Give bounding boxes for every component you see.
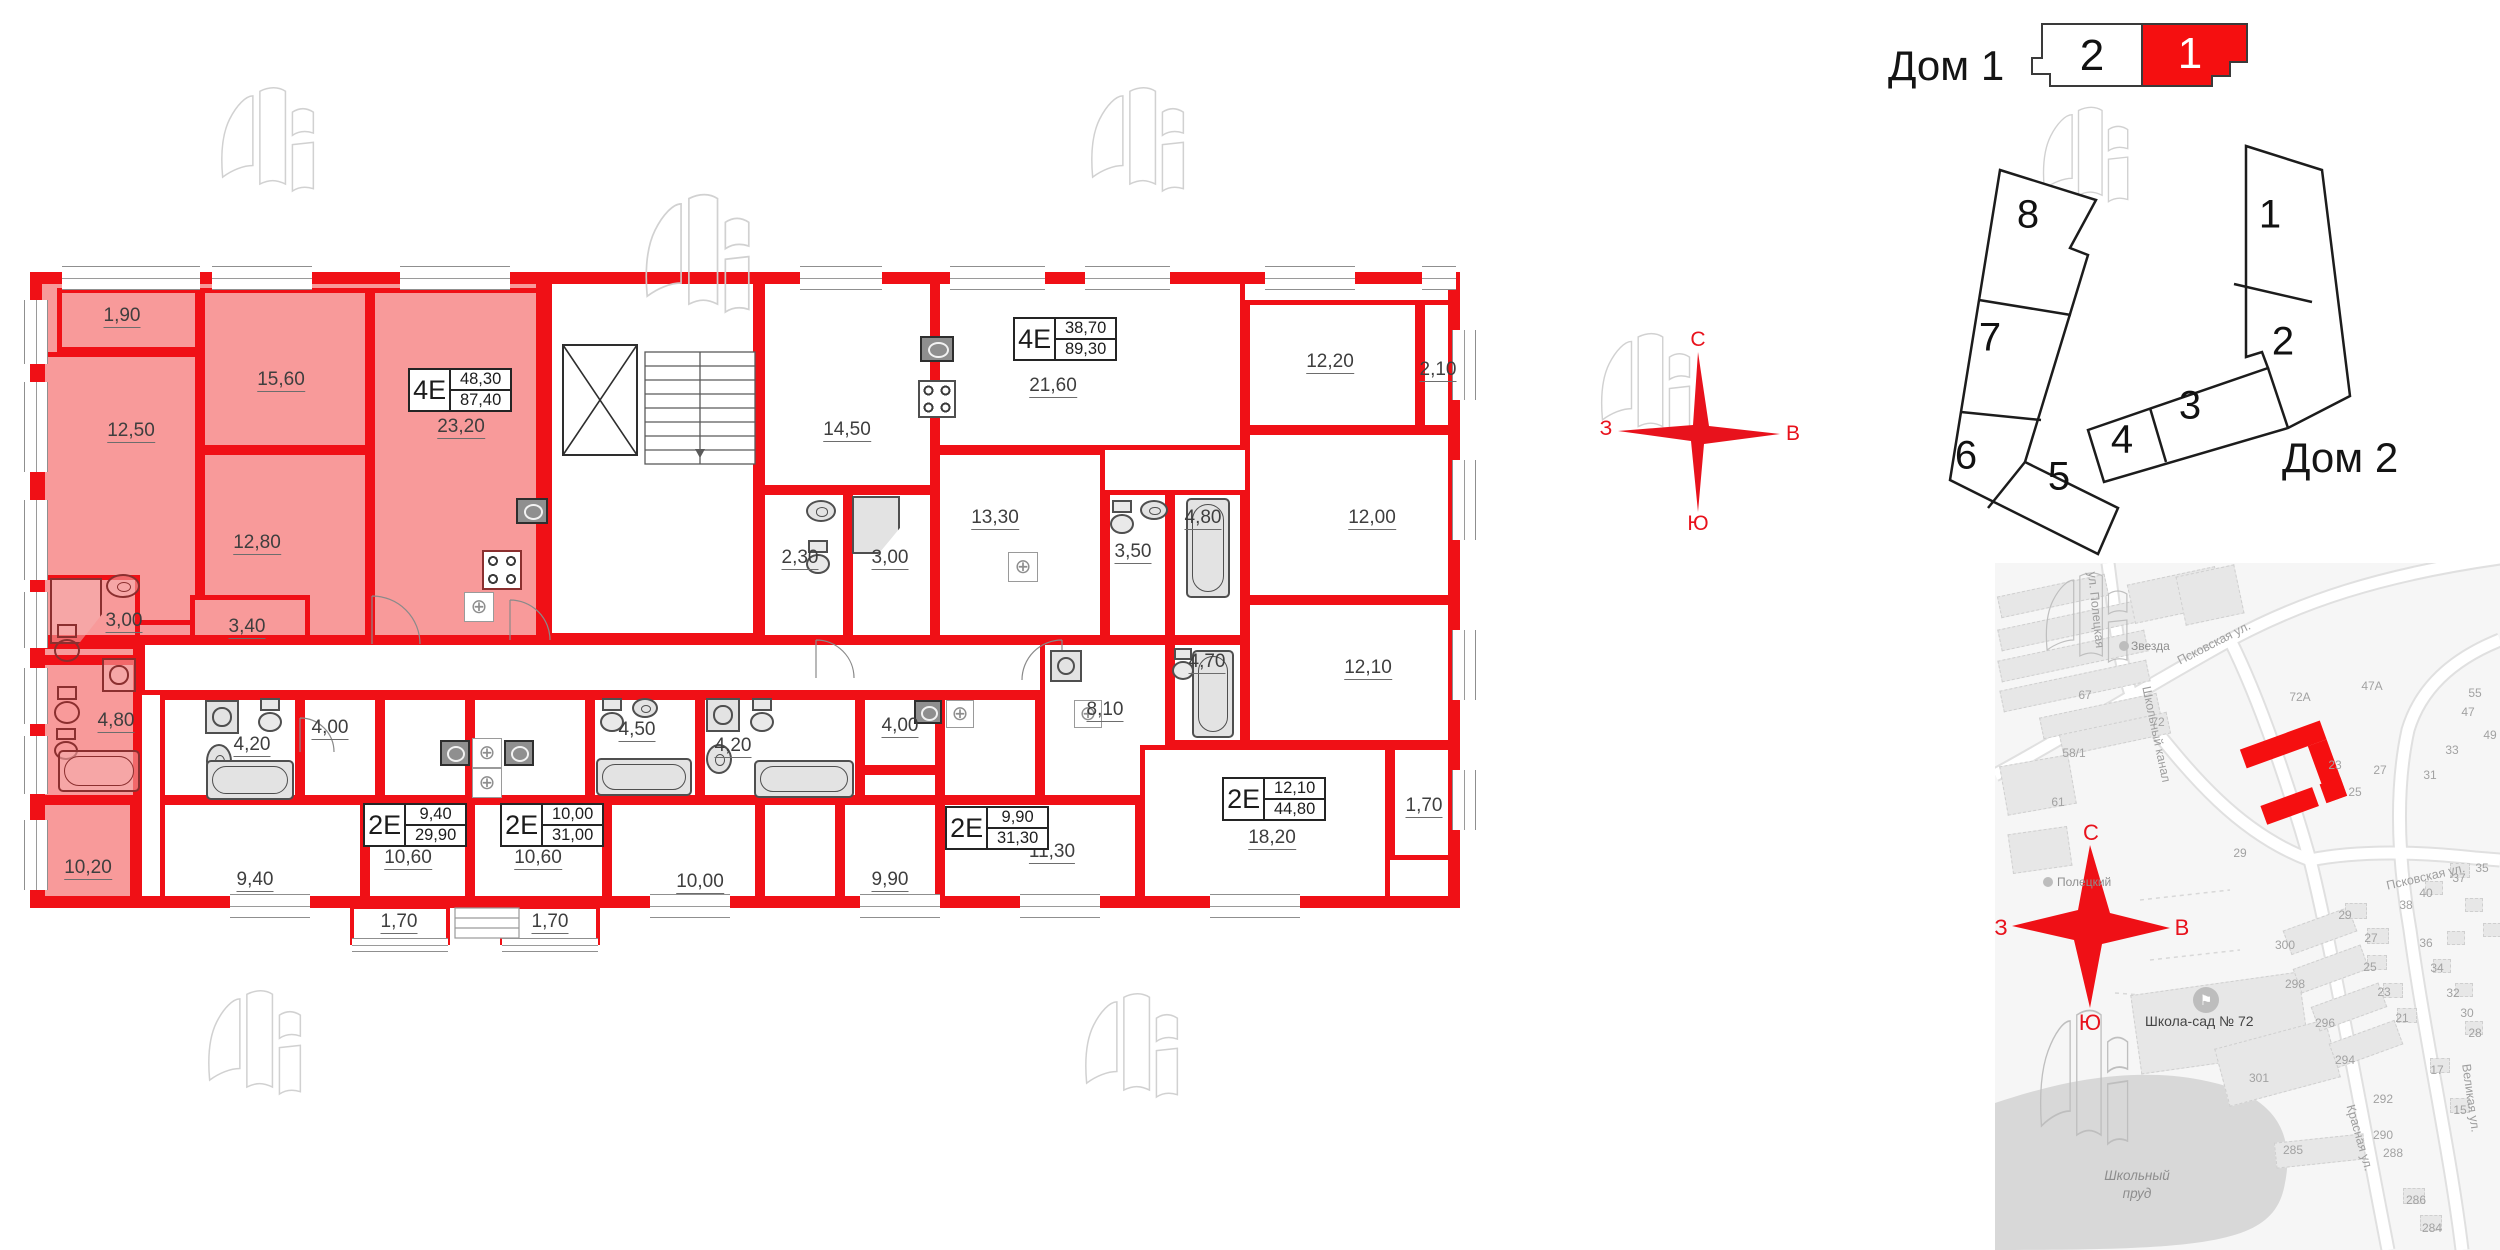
- map-compass-north: С: [2083, 820, 2099, 846]
- fixture-icon: [920, 336, 954, 362]
- house-selector-label: Дом 1: [1888, 42, 2004, 90]
- room-area-label: 12,10: [1344, 657, 1392, 679]
- room-area-label: 1,70: [532, 911, 569, 933]
- apartment-type: 2Е: [365, 805, 406, 845]
- apartment-info-box[interactable]: 2Е 9,90 31,30: [945, 806, 1049, 850]
- fixture-icon: [482, 550, 522, 590]
- entrance-steps: [455, 908, 519, 938]
- fixture-icon: [464, 592, 494, 622]
- fixture-icon: [54, 686, 80, 724]
- selector-number-1[interactable]: 1: [2178, 29, 2202, 79]
- fixture-icon: [754, 760, 854, 798]
- room-area-label: 14,50: [823, 419, 871, 441]
- apartment-living-area: 38,70: [1056, 319, 1115, 340]
- room-area-label: 4,50: [619, 719, 656, 741]
- room-area-label: 9,90: [872, 869, 909, 891]
- apartment-info-box[interactable]: 2Е 12,10 44,80: [1222, 777, 1326, 821]
- room-area-label: 4,80: [98, 710, 135, 732]
- apartment-living-area: 12,10: [1265, 779, 1324, 800]
- fixture-icon: [54, 624, 80, 662]
- apartment-total-area: 44,80: [1265, 800, 1324, 819]
- room-area-label: 10,00: [676, 871, 724, 893]
- room-area-label: 4,20: [234, 734, 271, 756]
- page: { "selector": { "label": "Дом 1", "optio…: [0, 0, 2500, 1250]
- room-area-label: 1,70: [1406, 795, 1443, 817]
- fixture-icon: [516, 498, 548, 524]
- apartment-type: 2Е: [947, 808, 988, 848]
- apartment-type: 4Е: [1015, 319, 1056, 359]
- plan-vector-layer: [0, 0, 2500, 1250]
- fixture-icon: [706, 698, 740, 732]
- fixture-icon: [1110, 500, 1134, 534]
- room-area-label: 10,20: [64, 857, 112, 879]
- room-area-label: 12,20: [1306, 351, 1354, 373]
- map-compass-east: В: [2175, 915, 2190, 941]
- room-area-label: 13,30: [971, 507, 1019, 529]
- fixture-icon: [106, 574, 140, 598]
- fixture-icon: [1050, 650, 1082, 682]
- fixture-icon: [206, 760, 294, 800]
- room-area-label: 4,00: [882, 715, 919, 737]
- fixture-icon: [258, 698, 282, 732]
- room-area-label: 1,70: [381, 911, 418, 933]
- apartment-total-area: 29,90: [406, 826, 465, 845]
- room-area-label: 1,90: [104, 305, 141, 327]
- apartment-info-box[interactable]: 2Е 9,40 29,90: [363, 803, 467, 847]
- room-area-label: 3,00: [872, 547, 909, 569]
- apartment-total-area: 89,30: [1056, 340, 1115, 359]
- room-area-label: 3,40: [229, 616, 266, 638]
- map-compass-south: Ю: [2079, 1010, 2101, 1036]
- room-area-label: 9,40: [237, 869, 274, 891]
- apartment-info-box[interactable]: 2Е 10,00 31,00: [500, 803, 604, 847]
- room-area-label: 21,60: [1029, 375, 1077, 397]
- fixture-icon: [596, 758, 692, 796]
- apartment-living-area: 9,90: [988, 808, 1047, 829]
- room-area-label: 4,80: [1185, 507, 1222, 529]
- fixture-icon: [472, 768, 502, 798]
- fixture-icon: [58, 750, 140, 792]
- apartment-info-box[interactable]: 4Е 48,30 87,40: [408, 368, 512, 412]
- room-area-label: 8,10: [1087, 699, 1124, 721]
- apartment-total-area: 31,00: [543, 826, 602, 845]
- room-area-label: 12,50: [107, 420, 155, 442]
- door-arcs: [300, 596, 1062, 752]
- room-area-label: 4,20: [715, 735, 752, 757]
- room-area-label: 2,30: [782, 547, 819, 569]
- apartment-living-area: 48,30: [451, 370, 510, 391]
- floor-plan: 1,9015,6012,5023,2012,803,003,404,8010,2…: [0, 0, 2500, 1250]
- fixture-icon: [918, 380, 956, 418]
- room-area-label: 23,20: [437, 416, 485, 438]
- fixture-icon: [102, 658, 136, 692]
- room-area-label: 12,80: [233, 532, 281, 554]
- fixture-icon: [946, 700, 974, 728]
- room-area-label: 3,00: [106, 610, 143, 632]
- room-area-label: 10,60: [384, 847, 432, 869]
- fixture-icon: [504, 740, 534, 766]
- fixture-icon: [440, 740, 470, 766]
- apartment-living-area: 10,00: [543, 805, 602, 826]
- dom2-label: Дом 2: [2282, 434, 2398, 482]
- room-area-label: 4,00: [312, 717, 349, 739]
- room-area-label: 4,70: [1189, 651, 1226, 673]
- apartment-info-box[interactable]: 4Е 38,70 89,30: [1013, 317, 1117, 361]
- fixture-icon: [205, 700, 239, 734]
- staircase: [645, 352, 755, 464]
- elevator-shaft: [563, 345, 637, 455]
- apartment-living-area: 9,40: [406, 805, 465, 826]
- apartment-type: 2Е: [502, 805, 543, 845]
- apartment-total-area: 87,40: [451, 391, 510, 410]
- fixture-icon: [472, 738, 502, 768]
- selector-number-2[interactable]: 2: [2080, 31, 2104, 81]
- map-compass-west: З: [1995, 915, 2008, 941]
- room-area-label: 3,50: [1115, 541, 1152, 563]
- fixture-icon: [1140, 500, 1168, 520]
- room-area-label: 12,00: [1348, 507, 1396, 529]
- apartment-total-area: 31,30: [988, 829, 1047, 848]
- fixture-icon: [632, 698, 658, 718]
- fixture-icon: [1008, 552, 1038, 582]
- apartment-type: 2Е: [1224, 779, 1265, 819]
- fixture-icon: [806, 500, 836, 522]
- apartment-type: 4Е: [410, 370, 451, 410]
- room-area-label: 2,10: [1420, 359, 1457, 381]
- fixture-icon: [750, 698, 774, 732]
- room-area-label: 15,60: [257, 369, 305, 391]
- room-area-label: 10,60: [514, 847, 562, 869]
- room-area-label: 18,20: [1248, 827, 1296, 849]
